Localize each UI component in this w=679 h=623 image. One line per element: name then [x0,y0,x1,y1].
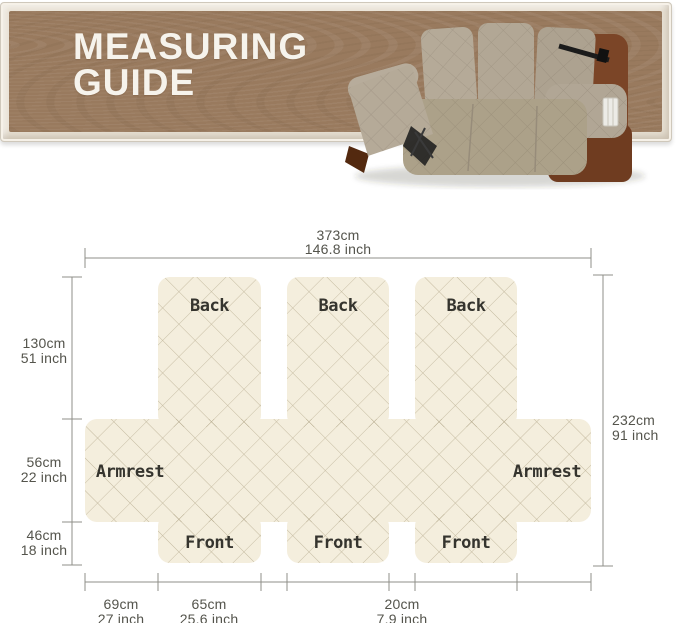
sofa-image [335,6,679,198]
measure-armrest-height-cm: 56cm [26,454,61,470]
panel-label-front-2: Front [314,533,363,553]
measure-back-height-cm: 130cm [22,335,65,351]
dimension-total-width: 373cm 146.8 inch [85,227,591,268]
dimension-left-heights: 130cm 51 inch 56cm 22 inch 46cm 18 inch [21,277,82,565]
measure-armrest-width-cm: 69cm [103,596,138,612]
measure-total-height-cm: 232cm [612,412,655,428]
measure-total-width-inch: 146.8 inch [305,241,372,257]
sofa-cover [345,23,627,175]
measure-total-height-inch: 91 inch [612,427,659,443]
measure-armrest-height-inch: 22 inch [21,469,68,485]
dimension-total-height: 232cm 91 inch [593,275,659,566]
page-title-line1: MEASURING [73,29,308,65]
panel-label-back-2: Back [319,296,358,316]
page-title: MEASURING GUIDE [73,29,308,101]
measure-seat-width-cm: 65cm [191,596,226,612]
panel-label-front-3: Front [442,533,491,553]
panel-label-front-1: Front [185,533,234,553]
measuring-guide-page: MEASURING GUIDE [0,0,679,623]
panel-label-back-1: Back [190,296,229,316]
sofa-side-pocket [603,98,618,126]
measuring-diagram: Back Back Back Armrest Armrest Front Fro… [0,210,679,623]
measure-front-height-inch: 18 inch [21,542,68,558]
measure-back-height-inch: 51 inch [21,350,68,366]
measure-seat-width-inch: 25.6 inch [180,611,239,623]
measure-gap-width-cm: 20cm [384,596,419,612]
cover-panels [85,277,591,563]
page-title-line2: GUIDE [73,65,308,101]
panel-label-back-3: Back [447,296,486,316]
measure-gap-width-inch: 7.9 inch [377,611,428,623]
panel-label-armrest-right: Armrest [513,462,581,482]
measure-armrest-width-inch: 27 inch [98,611,145,623]
panel-label-armrest-left: Armrest [96,462,164,482]
measure-front-height-cm: 46cm [26,527,61,543]
dimension-bottom-widths: 69cm 27 inch 65cm 25.6 inch 20cm 7.9 inc… [85,573,591,623]
